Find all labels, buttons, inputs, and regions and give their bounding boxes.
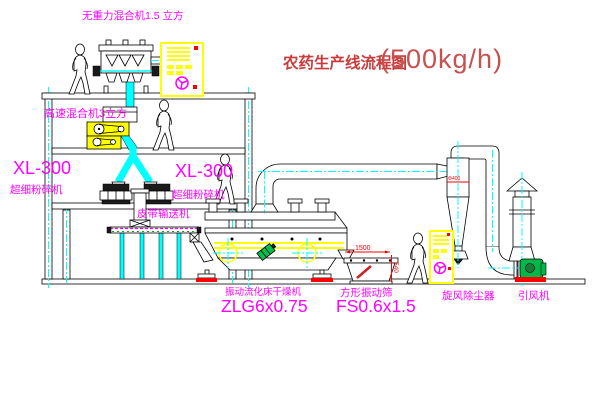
worker-figure bbox=[407, 233, 428, 283]
label-pulverizer-left-model: XL-300 bbox=[13, 159, 71, 177]
label-pulverizer-left-name: 超细粉碎机 bbox=[10, 185, 63, 196]
label-pulverizer-center-model: XL-300 bbox=[175, 162, 233, 180]
worker-figure bbox=[69, 44, 90, 94]
label-gravity-mixer: 无重力混合机1.5 立方 bbox=[82, 11, 184, 22]
label-cyclone: 旋风除尘器 bbox=[442, 291, 495, 302]
dim-length: 1500 bbox=[355, 245, 371, 252]
label-high-speed-mixer: 高速混合机3立方 bbox=[44, 109, 127, 120]
diagram-capacity: (500kg/h) bbox=[380, 44, 503, 75]
pulverizer-left bbox=[100, 184, 132, 204]
control-cabinet-bottom bbox=[430, 231, 453, 283]
label-belt-conveyor: 皮带输送机 bbox=[137, 209, 190, 220]
induced-draft-fan bbox=[515, 259, 546, 282]
dim-cyclone-dia: Φ400 bbox=[448, 176, 461, 182]
exhaust-duct bbox=[251, 164, 452, 214]
label-fan: 引风机 bbox=[518, 291, 550, 302]
label-sieve-model: FS0.6x1.5 bbox=[336, 298, 416, 316]
process-flow-diagram: 1500 540 Φ400 农药生产线流程图 (500kg/h) 无重力混合机1… bbox=[0, 0, 600, 403]
belt-conveyor bbox=[107, 227, 213, 279]
label-pulverizer-center-name: 超细粉碎机 bbox=[172, 190, 225, 201]
worker-figure bbox=[153, 100, 174, 150]
label-dryer-model: ZLG6x0.75 bbox=[221, 298, 308, 316]
dim-height: 540 bbox=[392, 262, 399, 273]
control-cabinet-top bbox=[161, 43, 203, 96]
